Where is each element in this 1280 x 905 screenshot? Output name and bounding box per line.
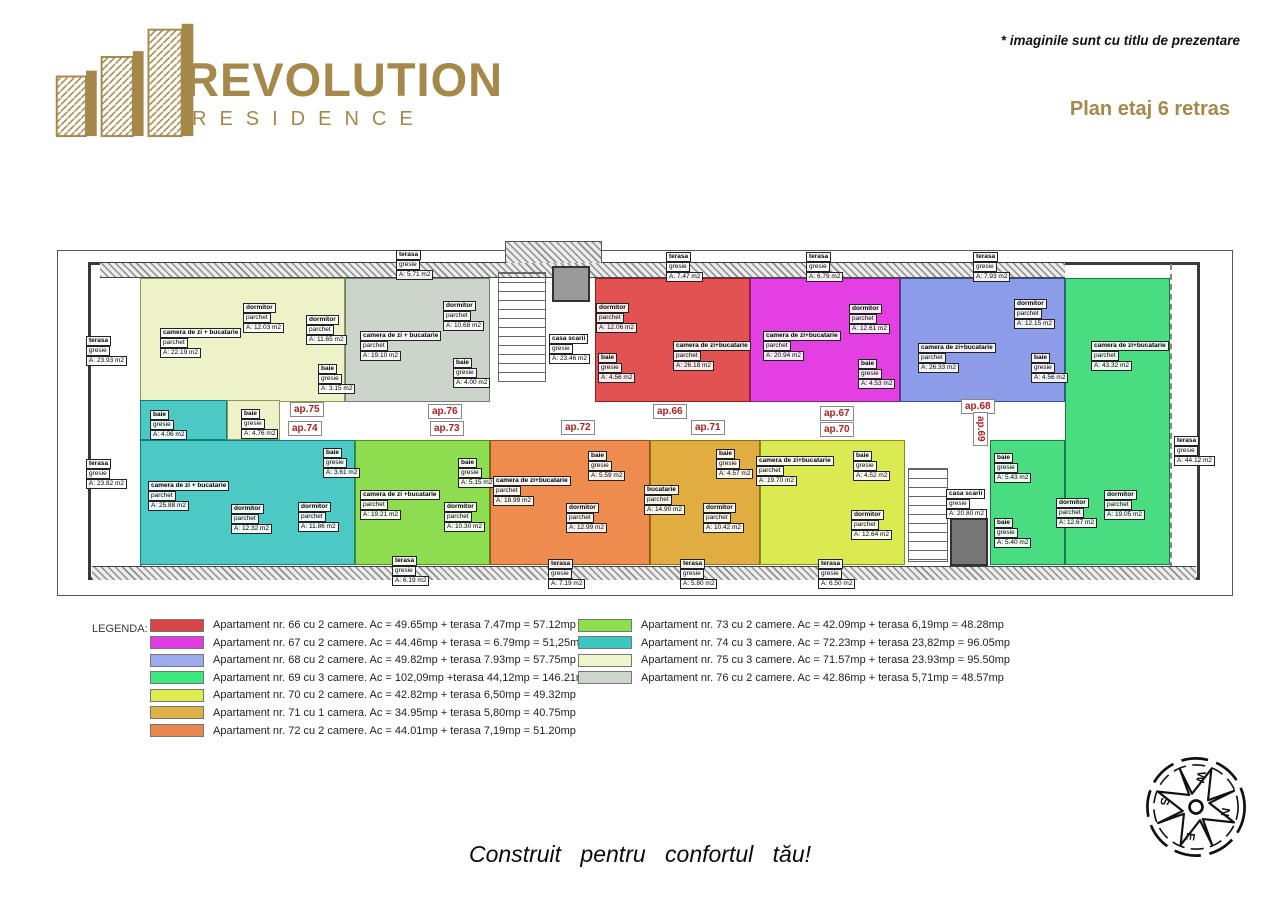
- label-line: parchet: [1104, 500, 1132, 510]
- label-line: gresie: [1174, 446, 1198, 456]
- label-line: parchet: [673, 351, 701, 361]
- label-line: A: 23.82 m2: [86, 479, 127, 489]
- room-label: camera de zi+bucatarieparchetA: 26.33 m2: [918, 343, 996, 373]
- label-line: gresie: [680, 569, 704, 579]
- label-line: parchet: [1056, 508, 1084, 518]
- room-label: dormitorparchetA: 10.42 m2: [703, 503, 744, 533]
- label-line: baie: [598, 353, 617, 363]
- label-line: terasa: [548, 559, 573, 569]
- elevator-south-icon: [950, 518, 988, 566]
- label-line: A: 5.40 m2: [994, 538, 1031, 548]
- label-line: gresie: [994, 528, 1018, 538]
- label-line: gresie: [548, 569, 572, 579]
- label-line: terasa: [806, 252, 831, 262]
- label-line: camera de zi + bucatarie: [148, 481, 229, 491]
- legend-item-label: Apartament nr. 72 cu 2 camere. Ac = 44.0…: [213, 725, 576, 737]
- room-label: dormitorparchetA: 12.61 m2: [849, 304, 890, 334]
- unit-area-ap.68: [900, 278, 1065, 402]
- label-line: terasa: [666, 252, 691, 262]
- label-line: camera de zi+bucatarie: [673, 341, 751, 351]
- terrace-label: terasagresieA: 5.71 m2: [396, 250, 433, 280]
- label-line: parchet: [443, 311, 471, 321]
- label-line: baie: [150, 410, 169, 420]
- stairwell-label: casa scariigresieA: 20.80 m2: [946, 489, 987, 519]
- label-line: camera de zi +bucatarie: [360, 490, 440, 500]
- apartment-number-label: ap.75: [290, 402, 324, 417]
- label-line: terasa: [1174, 436, 1199, 446]
- label-line: baie: [994, 453, 1013, 463]
- label-line: dormitor: [566, 503, 599, 513]
- label-line: A: 10.68 m2: [443, 321, 484, 331]
- label-line: gresie: [458, 468, 482, 478]
- apartment-number-label: ap.67: [820, 406, 854, 421]
- room-label: dormitorparchetA: 19.05 m2: [1104, 490, 1145, 520]
- label-line: A: 19.70 m2: [756, 476, 797, 486]
- room-label: camera de zi+bucatarieparchetA: 26.18 m2: [673, 341, 751, 371]
- label-line: A: 7.47 m2: [666, 272, 703, 282]
- compass-south-label: S: [1157, 796, 1172, 806]
- label-line: terasa: [818, 559, 843, 569]
- label-line: parchet: [849, 314, 877, 324]
- label-line: dormitor: [298, 502, 331, 512]
- label-line: gresie: [396, 260, 420, 270]
- legend-item-label: Apartament nr. 76 cu 2 camere. Ac = 42.8…: [641, 672, 1004, 684]
- legend-item: Apartament nr. 72 cu 2 camere. Ac = 44.0…: [150, 724, 591, 738]
- legend-item-label: Apartament nr. 70 cu 2 camere. Ac = 42.8…: [213, 689, 576, 701]
- terrace-label: terasagresieA: 7.93 m2: [973, 252, 1010, 282]
- label-line: terasa: [973, 252, 998, 262]
- legend-column-left: Apartament nr. 66 cu 2 camere. Ac = 49.6…: [150, 618, 591, 738]
- label-line: A: 5.43 m2: [994, 473, 1031, 483]
- legend-swatch: [150, 689, 204, 702]
- label-line: parchet: [703, 513, 731, 523]
- legend-swatch: [150, 706, 204, 719]
- label-line: gresie: [598, 363, 622, 373]
- label-line: gresie: [1031, 363, 1055, 373]
- label-line: dormitor: [443, 301, 476, 311]
- label-line: A: 22.19 m2: [160, 348, 201, 358]
- legend-title: LEGENDA:: [92, 623, 148, 635]
- label-line: A: 23.46 m2: [549, 354, 590, 364]
- label-line: A: 4.56 m2: [598, 373, 635, 383]
- legend-item-label: Apartament nr. 75 cu 3 camere. Ac = 71.5…: [641, 654, 1010, 666]
- label-line: A: 5.71 m2: [396, 270, 433, 280]
- label-line: A: 12.61 m2: [849, 324, 890, 334]
- room-label: bucatarieparchetA: 14.90 m2: [644, 485, 685, 515]
- terrace-label: terasagresieA: 7.47 m2: [666, 252, 703, 282]
- apartment-number-label: ap.74: [288, 421, 322, 436]
- label-line: baie: [716, 449, 735, 459]
- room-label: camera de zi +bucatarieparchetA: 19.21 m…: [360, 490, 440, 520]
- label-line: A: 12.32 m2: [231, 524, 272, 534]
- legend-swatch: [150, 619, 204, 632]
- elevator-north-icon: [552, 266, 590, 302]
- legend-swatch: [150, 636, 204, 649]
- terrace-label: terasagresieA: 23.93 m2: [86, 336, 127, 366]
- room-label: camera de zi+bucatarieparchetA: 18.99 m2: [493, 476, 571, 506]
- label-line: gresie: [318, 374, 342, 384]
- terrace-label: terasagresieA: 6.79 m2: [806, 252, 843, 282]
- room-label: dormitorparchetA: 12.99 m2: [566, 503, 607, 533]
- apartment-number-label: ap.69: [973, 412, 988, 446]
- room-label: baiegresieA: 4.00 m2: [453, 358, 490, 388]
- room-label: dormitorparchetA: 10.30 m2: [444, 502, 485, 532]
- label-line: camera de zi+bucatarie: [918, 343, 996, 353]
- label-line: gresie: [716, 459, 740, 469]
- label-line: gresie: [392, 566, 416, 576]
- room-label: dormitorparchetA: 11.65 m2: [306, 315, 347, 345]
- label-line: terasa: [86, 336, 111, 346]
- unit-area-ap.66: [595, 278, 750, 402]
- legend-item-label: Apartament nr. 74 cu 3 camere. Ac = 72.2…: [641, 637, 1010, 649]
- floor-plan: camera de zi + bucatarieparchetA: 22.19 …: [0, 0, 1280, 905]
- slogan: Construit pentru confortul tău!: [0, 841, 1280, 868]
- apartment-number-label: ap.73: [430, 421, 464, 436]
- label-line: A: 19.05 m2: [1104, 510, 1145, 520]
- label-line: A: 5.15 m2: [458, 478, 495, 488]
- room-label: baiegresieA: 4.56 m2: [598, 353, 635, 383]
- label-line: A: 11.86 m2: [298, 522, 339, 532]
- room-label: baiegresieA: 5.43 m2: [994, 453, 1031, 483]
- legend-item: Apartament nr. 75 cu 3 camere. Ac = 71.5…: [578, 653, 1010, 667]
- room-label: baiegresieA: 4.56 m2: [1031, 353, 1068, 383]
- label-line: gresie: [994, 463, 1018, 473]
- label-line: camera de zi+bucatarie: [756, 456, 834, 466]
- label-line: parchet: [243, 313, 271, 323]
- label-line: A: 19.21 m2: [360, 510, 401, 520]
- room-label: baiegresieA: 4.52 m2: [853, 451, 890, 481]
- room-label: dormitorparchetA: 11.86 m2: [298, 502, 339, 532]
- label-line: parchet: [918, 353, 946, 363]
- label-line: A: 10.42 m2: [703, 523, 744, 533]
- stairwell-protrusion: [505, 241, 602, 264]
- label-line: gresie: [818, 569, 842, 579]
- label-line: gresie: [806, 262, 830, 272]
- label-line: parchet: [493, 486, 521, 496]
- label-line: dormitor: [1056, 498, 1089, 508]
- label-line: A: 25.88 m2: [148, 501, 189, 511]
- label-line: gresie: [588, 461, 612, 471]
- terrace-label: terasagresieA: 23.82 m2: [86, 459, 127, 489]
- room-label: baiegresieA: 4.53 m2: [858, 359, 895, 389]
- label-line: A: 18.99 m2: [493, 496, 534, 506]
- label-line: parchet: [566, 513, 594, 523]
- legend-item: Apartament nr. 70 cu 2 camere. Ac = 42.8…: [150, 688, 591, 702]
- label-line: gresie: [946, 499, 970, 509]
- label-line: A: 3.15 m2: [318, 384, 355, 394]
- label-line: dormitor: [243, 303, 276, 313]
- label-line: A: 12.99 m2: [566, 523, 607, 533]
- legend-swatch: [150, 654, 204, 667]
- label-line: camera de zi+bucatarie: [1091, 341, 1169, 351]
- legend-item-label: Apartament nr. 68 cu 2 camere. Ac = 49.8…: [213, 654, 576, 666]
- label-line: dormitor: [851, 510, 884, 520]
- label-line: terasa: [86, 459, 111, 469]
- label-line: A: 11.65 m2: [306, 335, 347, 345]
- label-line: gresie: [853, 461, 877, 471]
- label-line: baie: [858, 359, 877, 369]
- bottom-wall-hatch: [92, 566, 1196, 580]
- apartment-number-label: ap.66: [653, 404, 687, 419]
- terrace-label: terasagresieA: 6.19 m2: [392, 556, 429, 586]
- room-label: baiegresieA: 4.76 m2: [241, 409, 278, 439]
- room-label: dormitorparchetA: 12.64 m2: [851, 510, 892, 540]
- label-line: dormitor: [703, 503, 736, 513]
- room-label: camera de zi+bucatarieparchetA: 20.94 m2: [763, 331, 841, 361]
- legend-item-label: Apartament nr. 66 cu 2 camere. Ac = 49.6…: [213, 619, 576, 631]
- label-line: parchet: [851, 520, 879, 530]
- terrace-label: terasagresieA: 7.19 m2: [548, 559, 585, 589]
- room-label: dormitorparchetA: 12.32 m2: [231, 504, 272, 534]
- label-line: gresie: [666, 262, 690, 272]
- label-line: parchet: [160, 338, 188, 348]
- label-line: A: 4.00 m2: [453, 378, 490, 388]
- label-line: A: 12.06 m2: [596, 323, 637, 333]
- label-line: dormitor: [231, 504, 264, 514]
- label-line: baie: [458, 458, 477, 468]
- legend-item: Apartament nr. 71 cu 1 camera. Ac = 34.9…: [150, 706, 591, 720]
- label-line: A: 20.80 m2: [946, 509, 987, 519]
- label-line: gresie: [323, 458, 347, 468]
- label-line: casa scarii: [549, 334, 588, 344]
- room-label: camera de zi + bucatarieparchetA: 22.19 …: [160, 328, 241, 358]
- label-line: parchet: [763, 341, 791, 351]
- legend-item: Apartament nr. 68 cu 2 camere. Ac = 49.8…: [150, 653, 591, 667]
- label-line: A: 6.50 m2: [818, 579, 855, 589]
- label-line: camera de zi+bucatarie: [763, 331, 841, 341]
- label-line: camera de zi + bucatarie: [360, 331, 441, 341]
- apartment-number-label: ap.76: [428, 404, 462, 419]
- label-line: A: 14.90 m2: [644, 505, 685, 515]
- label-line: bucatarie: [644, 485, 679, 495]
- label-line: gresie: [241, 419, 265, 429]
- legend-column-right: Apartament nr. 73 cu 2 camere. Ac = 42.0…: [578, 618, 1010, 685]
- legend-item: Apartament nr. 74 cu 3 camere. Ac = 72.2…: [578, 636, 1010, 650]
- room-label: baiegresieA: 4.06 m2: [150, 410, 187, 440]
- label-line: A: 23.93 m2: [86, 356, 127, 366]
- terrace-label: terasagresieA: 6.50 m2: [818, 559, 855, 589]
- label-line: parchet: [360, 500, 388, 510]
- room-label: baiegresieA: 5.40 m2: [994, 518, 1031, 548]
- room-label: baiegresieA: 3.15 m2: [318, 364, 355, 394]
- label-line: A: 19.10 m2: [360, 351, 401, 361]
- label-line: A: 6.79 m2: [806, 272, 843, 282]
- room-label: dormitorparchetA: 12.67 m2: [1056, 498, 1097, 528]
- label-line: dormitor: [1014, 299, 1047, 309]
- label-line: dormitor: [306, 315, 339, 325]
- label-line: terasa: [396, 250, 421, 260]
- label-line: gresie: [973, 262, 997, 272]
- label-line: A: 12.03 m2: [243, 323, 284, 333]
- label-line: gresie: [453, 368, 477, 378]
- label-line: casa scarii: [946, 489, 985, 499]
- legend-item-label: Apartament nr. 67 cu 2 camere. Ac = 44.4…: [213, 637, 585, 649]
- label-line: A: 5.80 m2: [680, 579, 717, 589]
- room-label: camera de zi + bucatarieparchetA: 25.88 …: [148, 481, 229, 511]
- label-line: A: 4.52 m2: [853, 471, 890, 481]
- room-label: camera de zi + bucatarieparchetA: 19.10 …: [360, 331, 441, 361]
- staircase-north-icon: [498, 272, 546, 382]
- label-line: A: 4.53 m2: [858, 379, 895, 389]
- room-label: baiegresieA: 5.15 m2: [458, 458, 495, 488]
- apartment-number-label: ap.70: [820, 422, 854, 437]
- label-line: gresie: [858, 369, 882, 379]
- label-line: A: 12.15 m2: [1014, 319, 1055, 329]
- label-line: gresie: [150, 420, 174, 430]
- terrace-label: terasagresieA: 44.12 m2: [1174, 436, 1215, 466]
- legend-swatch: [578, 671, 632, 684]
- label-line: A: 26.33 m2: [918, 363, 959, 373]
- legend-item-label: Apartament nr. 73 cu 2 camere. Ac = 42.0…: [641, 619, 1004, 631]
- label-line: gresie: [86, 469, 110, 479]
- legend-item: Apartament nr. 76 cu 2 camere. Ac = 42.8…: [578, 671, 1010, 685]
- label-line: parchet: [596, 313, 624, 323]
- label-line: dormitor: [1104, 490, 1137, 500]
- apartment-number-label: ap.71: [691, 420, 725, 435]
- label-line: baie: [588, 451, 607, 461]
- label-line: gresie: [549, 344, 573, 354]
- room-label: baiegresieA: 5.59 m2: [588, 451, 625, 481]
- label-line: gresie: [86, 346, 110, 356]
- label-line: A: 7.19 m2: [548, 579, 585, 589]
- legend-item: Apartament nr. 69 cu 3 camere. Ac = 102,…: [150, 671, 591, 685]
- room-label: dormitorparchetA: 12.03 m2: [243, 303, 284, 333]
- label-line: baie: [853, 451, 872, 461]
- label-line: A: 44.12 m2: [1174, 456, 1215, 466]
- room-label: dormitorparchetA: 10.68 m2: [443, 301, 484, 331]
- label-line: A: 4.06 m2: [150, 430, 187, 440]
- label-line: A: 5.59 m2: [588, 471, 625, 481]
- room-label: dormitorparchetA: 12.15 m2: [1014, 299, 1055, 329]
- legend-item: Apartament nr. 66 cu 2 camere. Ac = 49.6…: [150, 618, 591, 632]
- label-line: A: 4.57 m2: [716, 469, 753, 479]
- label-line: parchet: [644, 495, 672, 505]
- terrace-label: terasagresieA: 5.80 m2: [680, 559, 717, 589]
- compass-west-label: W: [1193, 770, 1209, 784]
- legend-item-label: Apartament nr. 69 cu 3 camere. Ac = 102,…: [213, 672, 591, 684]
- legend-item: Apartament nr. 73 cu 2 camere. Ac = 42.0…: [578, 618, 1010, 632]
- label-line: A: 26.18 m2: [673, 361, 714, 371]
- apartment-number-label: ap.72: [561, 420, 595, 435]
- label-line: parchet: [148, 491, 176, 501]
- label-line: A: 43.32 m2: [1091, 361, 1132, 371]
- label-line: A: 6.19 m2: [392, 576, 429, 586]
- legend-swatch: [578, 636, 632, 649]
- label-line: terasa: [680, 559, 705, 569]
- label-line: A: 7.93 m2: [973, 272, 1010, 282]
- label-line: A: 4.76 m2: [241, 429, 278, 439]
- label-line: baie: [1031, 353, 1050, 363]
- label-line: camera de zi + bucatarie: [160, 328, 241, 338]
- room-label: baiegresieA: 4.57 m2: [716, 449, 753, 479]
- label-line: dormitor: [596, 303, 629, 313]
- label-line: baie: [318, 364, 337, 374]
- legend-swatch: [150, 671, 204, 684]
- label-line: baie: [453, 358, 472, 368]
- room-label: camera de zi+bucatarieparchetA: 43.32 m2: [1091, 341, 1169, 371]
- legend-swatch: [578, 654, 632, 667]
- label-line: camera de zi+bucatarie: [493, 476, 571, 486]
- legend-item: Apartament nr. 67 cu 2 camere. Ac = 44.4…: [150, 636, 591, 650]
- label-line: parchet: [360, 341, 388, 351]
- label-line: parchet: [298, 512, 326, 522]
- label-line: terasa: [392, 556, 417, 566]
- label-line: parchet: [1091, 351, 1119, 361]
- label-line: baie: [994, 518, 1013, 528]
- right-terrace-divider: [1170, 264, 1172, 578]
- label-line: parchet: [444, 512, 472, 522]
- legend-swatch: [578, 619, 632, 632]
- label-line: A: 20.94 m2: [763, 351, 804, 361]
- room-label: camera de zi+bucatarieparchetA: 19.70 m2: [756, 456, 834, 486]
- label-line: dormitor: [444, 502, 477, 512]
- label-line: parchet: [306, 325, 334, 335]
- legend-swatch: [150, 724, 204, 737]
- label-line: A: 12.67 m2: [1056, 518, 1097, 528]
- label-line: parchet: [231, 514, 259, 524]
- stairwell-label: casa scariigresieA: 23.46 m2: [549, 334, 590, 364]
- staircase-south-icon: [908, 468, 948, 562]
- label-line: A: 12.64 m2: [851, 530, 892, 540]
- label-line: A: 4.56 m2: [1031, 373, 1068, 383]
- label-line: baie: [241, 409, 260, 419]
- legend-item-label: Apartament nr. 71 cu 1 camera. Ac = 34.9…: [213, 707, 576, 719]
- label-line: A: 10.30 m2: [444, 522, 485, 532]
- label-line: dormitor: [849, 304, 882, 314]
- label-line: parchet: [1014, 309, 1042, 319]
- room-label: baiegresieA: 3.61 m2: [323, 448, 360, 478]
- room-label: dormitorparchetA: 12.06 m2: [596, 303, 637, 333]
- label-line: parchet: [756, 466, 784, 476]
- label-line: baie: [323, 448, 342, 458]
- label-line: A: 3.61 m2: [323, 468, 360, 478]
- legend: LEGENDA: Apartament nr. 66 cu 2 camere. …: [90, 618, 1230, 748]
